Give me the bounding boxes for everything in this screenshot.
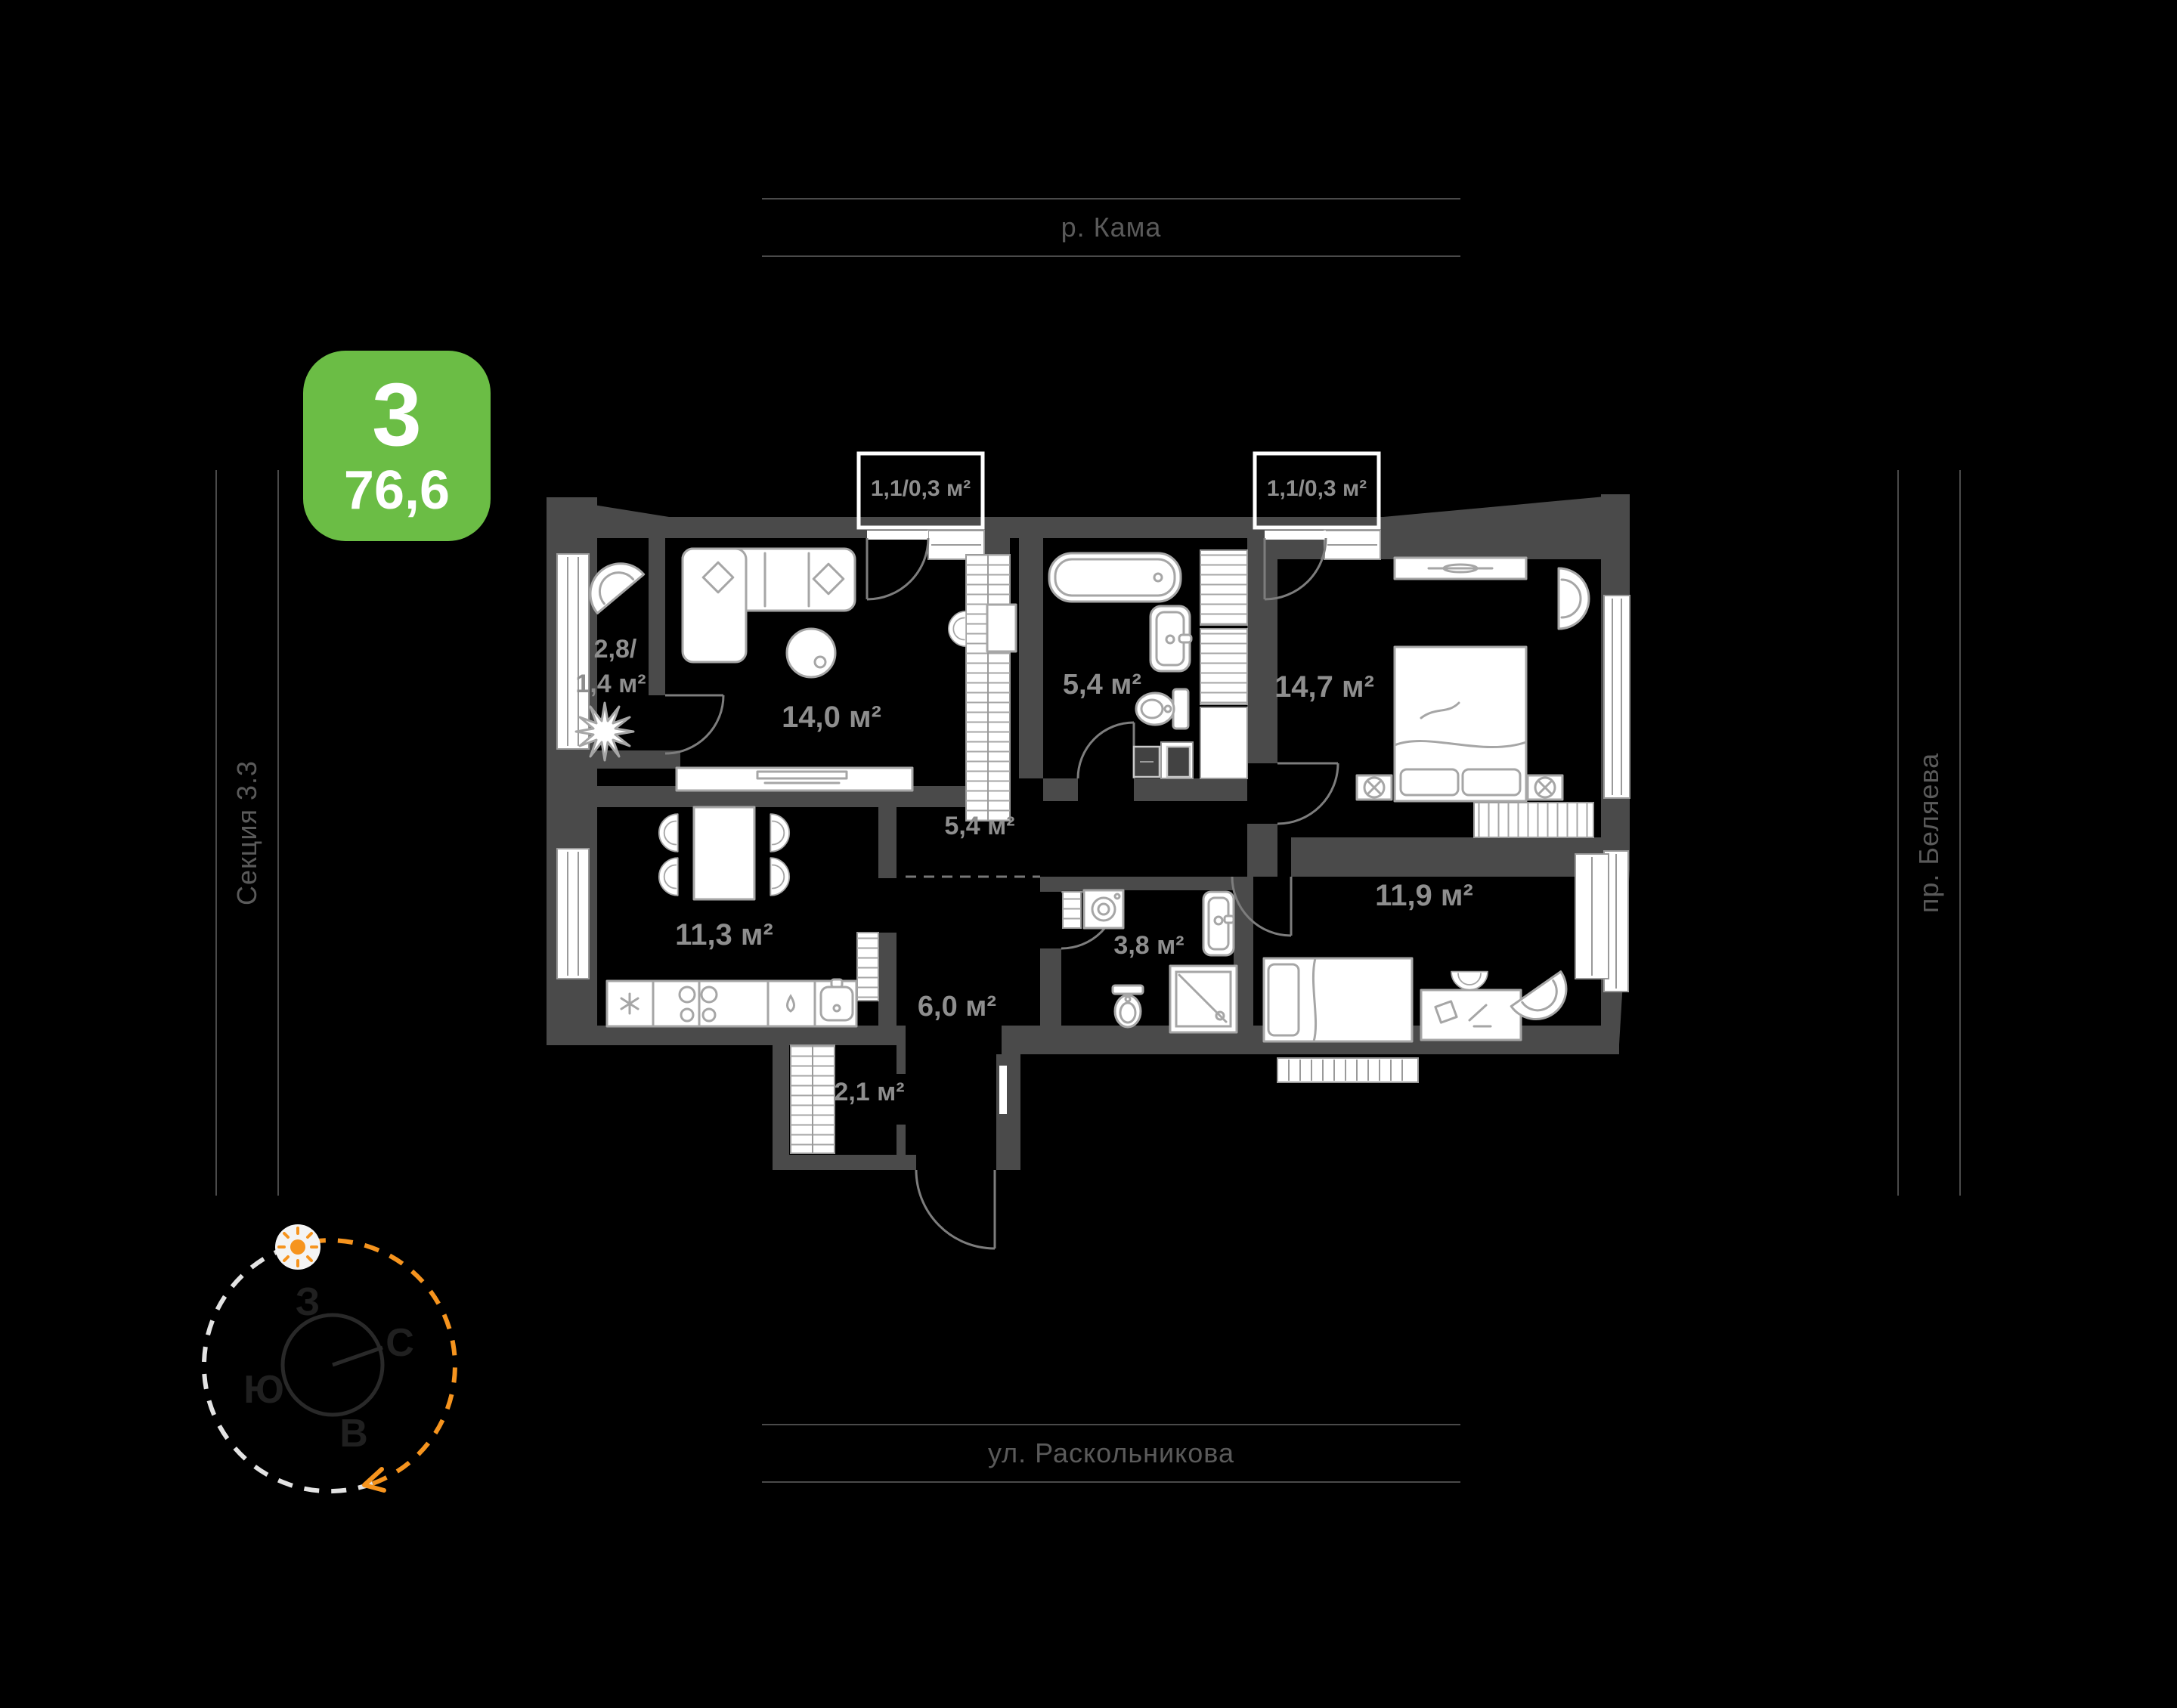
corridor-wardrobe [966,555,1010,821]
balcony-1-threshold [867,531,928,540]
room-label-balcony-1: 1,1/0,3 м² [871,476,971,501]
sink-2 [1203,892,1234,955]
dresser [1395,558,1526,579]
section-bar-left: Секция 3.3 [215,470,279,1196]
single-bed [1264,958,1412,1041]
kitchen-counter [607,979,856,1026]
toilet-2 [1113,986,1143,1027]
bathroom-units [1134,742,1193,778]
entry-door [916,1170,995,1249]
room-label-bedroom-2: 11,9 м² [1375,879,1473,912]
compass-south: Ю [243,1368,284,1412]
living-door [665,695,723,753]
street-bar-bottom: ул. Раскольникова [762,1424,1460,1483]
street-label-top: р. Кама [1061,212,1162,243]
window-bedroom [1604,596,1630,798]
compass-north: С [386,1321,414,1365]
bedroom-armchair [1559,568,1589,629]
street-label-right: пр. Беляева [1913,753,1945,913]
apartment-area: 76,6 [344,461,450,521]
street-bar-right: пр. Беляева [1897,470,1961,1196]
washing-machine [1063,890,1123,928]
street-label-bottom: ул. Раскольникова [988,1437,1234,1469]
compass: З С Ю В [193,1180,495,1543]
compass-east: В [339,1412,368,1456]
desk [1421,990,1521,1040]
floor-plan: 2,8/ 1,4 м² 14,0 м² 1,1/0,3 м² 5,4 м² 1,… [529,420,1678,1335]
nightstand-left [1357,775,1392,800]
rug [787,629,835,677]
desk-chair [1451,972,1488,990]
compass-west: З [296,1280,321,1324]
bedroom-door [1277,763,1338,824]
window-sill-bottom [1277,1058,1418,1082]
room-label-loggia-1: 2,8/ [594,635,637,664]
bedroom-closet-row [1474,803,1593,837]
street-bar-top: р. Кама [762,198,1460,257]
bathroom-door [1078,722,1134,778]
entry-shaft [999,1066,1007,1114]
room-label-bathroom: 5,4 м² [1063,669,1141,701]
double-bed [1395,647,1526,801]
toilet [1136,689,1188,729]
room-label-kitchen: 11,3 м² [675,918,773,951]
bathtub [1049,553,1181,602]
room-label-corridor: 5,4 м² [944,812,1014,840]
storage-wardrobe [791,1045,835,1153]
balcony-1-door [867,538,928,599]
bathroom-sink [1150,606,1191,671]
tv-console [677,768,912,791]
room-label-wardrobe: 2,1 м² [834,1078,904,1106]
room-label-bedroom: 14,7 м² [1274,670,1374,704]
page: 3 76,6 р. Кама ул. Раскольникова Секция … [0,0,2177,1708]
shower [1170,966,1237,1032]
room-label-living: 14,0 м² [782,701,881,734]
dining-table [694,807,754,899]
sun-icon [275,1224,321,1270]
room-label-loggia-2: 1,4 м² [575,670,646,698]
room-label-balcony-2: 1,1/0,3 м² [1267,476,1367,501]
room-label-bathroom-2: 3,8 м² [1113,931,1184,960]
nightstand-right [1528,775,1562,800]
apartment-number: 3 [372,370,422,459]
section-label-left: Секция 3.3 [231,760,263,905]
bedroom-2-wardrobe [1575,854,1609,979]
apartment-badge: 3 76,6 [303,351,491,541]
room-label-hall: 6,0 м² [918,991,996,1023]
window-kitchen [557,849,589,979]
bathroom-closet [1200,550,1247,778]
compass-needle [333,1348,382,1365]
hall-shelf [857,933,878,1001]
balcony-2-threshold [1265,531,1326,540]
